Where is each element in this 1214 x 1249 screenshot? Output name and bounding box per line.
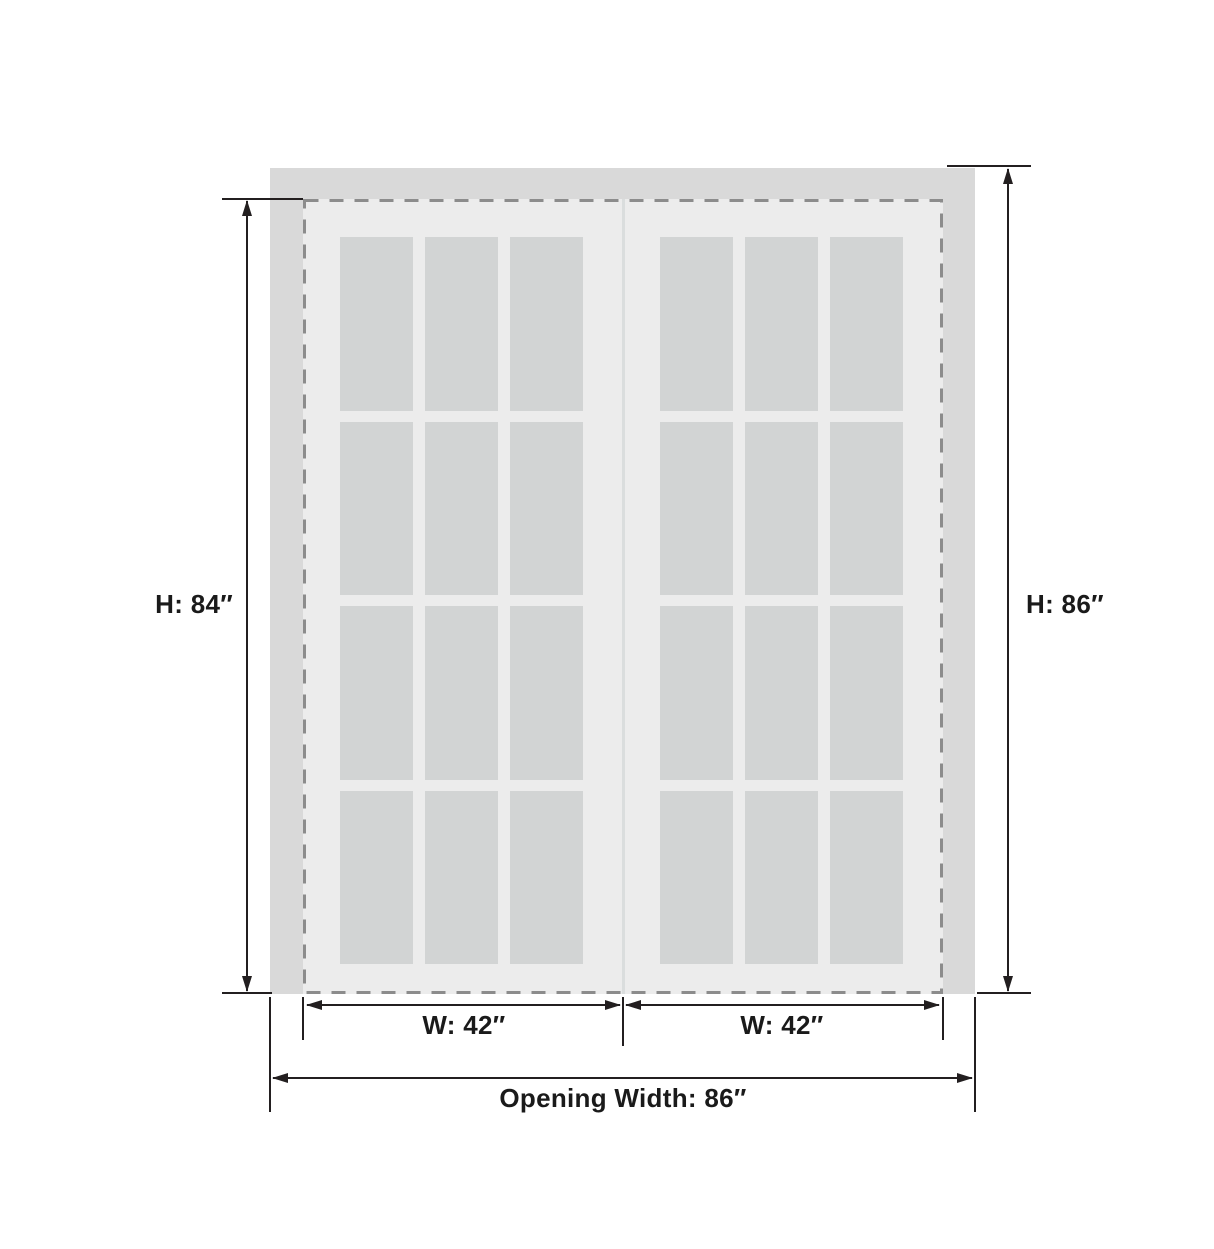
glass-pane [425,606,498,780]
glass-pane [830,237,903,411]
opening-width-label: Opening Width: 86″ [413,1083,833,1113]
glass-pane-grid-left [340,237,583,964]
glass-pane [340,791,413,965]
opening-height-label: H: 86″ [1026,589,1104,619]
glass-pane [660,606,733,780]
glass-pane [660,791,733,965]
glass-pane [830,422,903,596]
glass-pane [340,422,413,596]
door-diagram-canvas: H: 84″ H: 86″ W: 42″ W: 42″ Opening Widt… [0,0,1214,1249]
glass-pane [830,606,903,780]
glass-pane [425,237,498,411]
glass-pane [745,422,818,596]
glass-pane [830,791,903,965]
glass-pane [510,237,583,411]
glass-pane [425,422,498,596]
door-opening [303,199,943,994]
right-door-width-label: W: 42″ [662,1010,902,1040]
glass-pane [745,237,818,411]
glass-pane [340,237,413,411]
glass-pane [660,237,733,411]
glass-pane [745,606,818,780]
glass-pane [745,791,818,965]
door-height-label: H: 84″ [83,589,233,619]
glass-pane [510,606,583,780]
glass-pane-grid-right [660,237,903,964]
glass-pane [425,791,498,965]
left-door-width-label: W: 42″ [344,1010,584,1040]
glass-pane [340,606,413,780]
glass-pane [510,791,583,965]
glass-pane [510,422,583,596]
door-meeting-stile-line [622,199,625,994]
glass-pane [660,422,733,596]
